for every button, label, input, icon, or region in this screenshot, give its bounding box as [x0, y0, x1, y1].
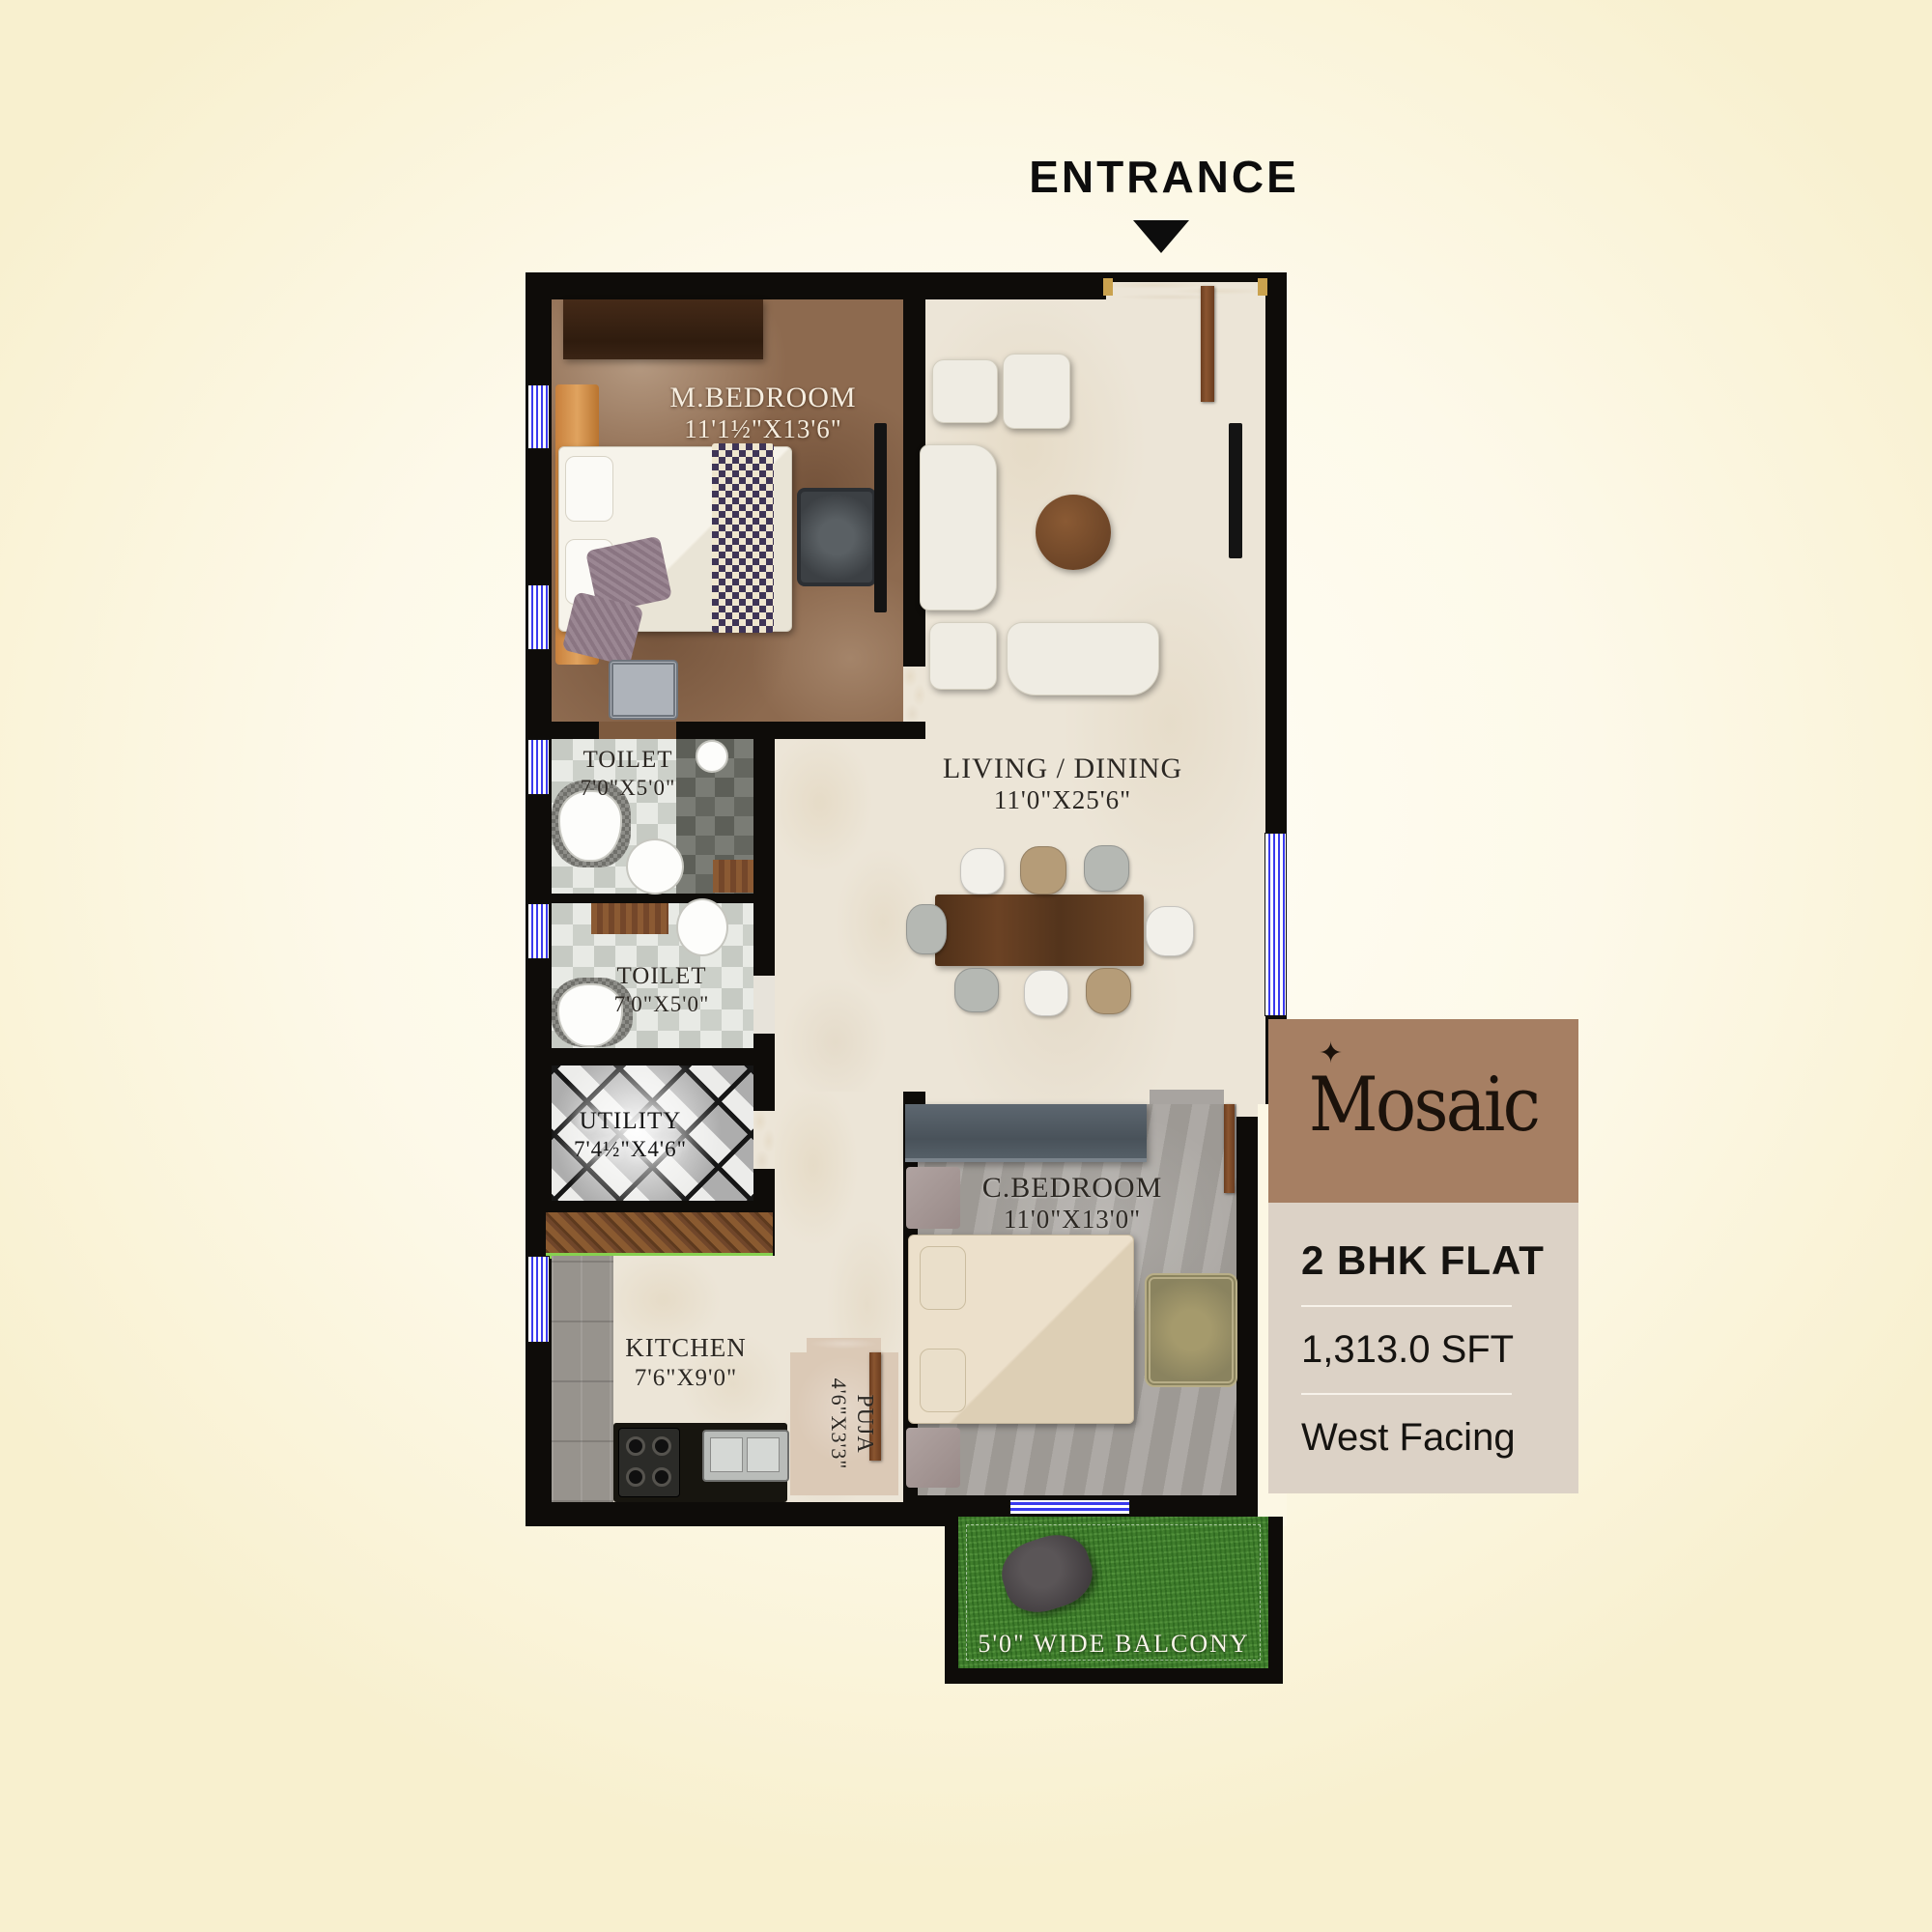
kitchen-sink — [702, 1430, 789, 1482]
divider — [1301, 1305, 1512, 1307]
balcony-slider-door — [1009, 1499, 1130, 1515]
dining-chair — [1024, 970, 1068, 1016]
room-label-toilet-2: TOILET 7'0"X5'0" — [575, 962, 749, 1017]
tv — [874, 423, 887, 612]
tv — [1229, 423, 1242, 558]
rug — [1145, 1273, 1237, 1387]
kitchen-window — [527, 1256, 550, 1343]
dining-chair — [906, 904, 947, 954]
dining-chair — [1086, 968, 1131, 1014]
room-label-kitchen: KITCHEN 7'6"X9'0" — [594, 1333, 778, 1392]
pillow — [920, 1349, 966, 1412]
stove — [618, 1428, 680, 1497]
armchair — [1003, 354, 1070, 429]
door-jamb — [1103, 278, 1113, 296]
kitchen-counter-hatch — [546, 1212, 773, 1259]
washbasin — [676, 898, 728, 956]
room-label-puja: PUJA 4'6"X3'3" — [810, 1351, 878, 1496]
dining-chair — [960, 848, 1005, 895]
side-table — [906, 1428, 960, 1488]
dining-table — [935, 895, 1144, 966]
wardrobe — [905, 1104, 1147, 1162]
door-jamb — [1258, 278, 1267, 296]
entrance-opening — [1106, 282, 1265, 299]
room-label-toilet-1: TOILET 7'0"X5'0" — [546, 746, 710, 801]
room-label-utility: UTILITY 7'4½"X4'6" — [541, 1107, 720, 1162]
flat-type: 2 BHK FLAT — [1301, 1237, 1578, 1284]
sofa — [1007, 622, 1159, 696]
flat-area: 1,313.0 SFT — [1301, 1328, 1578, 1372]
wardrobe — [563, 299, 763, 359]
coffee-table — [1036, 495, 1111, 570]
sofa — [920, 444, 997, 611]
info-panel-body: 2 BHK FLAT 1,313.0 SFT West Facing — [1268, 1203, 1578, 1493]
room-label-living-dining: LIVING / DINING 11'0"X25'6" — [918, 752, 1207, 816]
entrance-arrow-icon — [1133, 220, 1189, 253]
pillow — [565, 456, 613, 522]
toilet-2-door-opening — [753, 976, 775, 1034]
dining-chair — [1020, 846, 1066, 895]
window — [527, 384, 550, 449]
puja-door-opening — [807, 1338, 881, 1352]
bath-mat — [713, 860, 753, 893]
window — [527, 584, 550, 650]
toilet — [558, 790, 622, 862]
c-bedroom-door-opening — [1150, 1090, 1224, 1104]
bed-runner — [712, 443, 774, 633]
dining-chair — [1084, 845, 1129, 892]
living-window — [1264, 833, 1287, 1016]
m-bedroom-toilet-door-opening — [599, 722, 676, 739]
window — [527, 903, 550, 959]
ottoman — [929, 622, 997, 690]
brand-logo: Mosaic — [1284, 1062, 1563, 1149]
balcony: 5'0" WIDE BALCONY — [945, 1517, 1283, 1684]
room-label-balcony: 5'0" WIDE BALCONY — [945, 1630, 1283, 1659]
entrance-label: ENTRANCE — [1005, 151, 1323, 203]
utility-door-opening — [753, 1111, 775, 1169]
armchair — [932, 359, 998, 423]
pillow — [920, 1246, 966, 1310]
divider — [1301, 1393, 1512, 1395]
washbasin — [626, 838, 684, 895]
entrance-door-leaf — [1201, 286, 1214, 402]
rug — [609, 660, 678, 720]
dining-chair — [954, 968, 999, 1012]
info-panel-header: ✦ Mosaic — [1268, 1019, 1578, 1203]
floor-plan-page: ENTRANCE — [0, 0, 1932, 1932]
m-bedroom-door-opening — [903, 667, 925, 722]
floor-plan: M.BEDROOM 11'1½"X13'6" LIVING / DINING 1… — [526, 272, 1287, 1526]
room-label-m-bedroom: M.BEDROOM 11'1½"X13'6" — [618, 381, 908, 445]
dining-chair — [1146, 906, 1194, 956]
bath-mat — [591, 903, 668, 934]
passage-floor — [775, 739, 925, 1092]
rug — [797, 488, 876, 586]
room-label-c-bedroom: C.BEDROOM 11'0"X13'0" — [952, 1171, 1193, 1236]
flat-facing: West Facing — [1301, 1416, 1578, 1460]
c-bedroom-door-leaf — [1224, 1104, 1235, 1193]
